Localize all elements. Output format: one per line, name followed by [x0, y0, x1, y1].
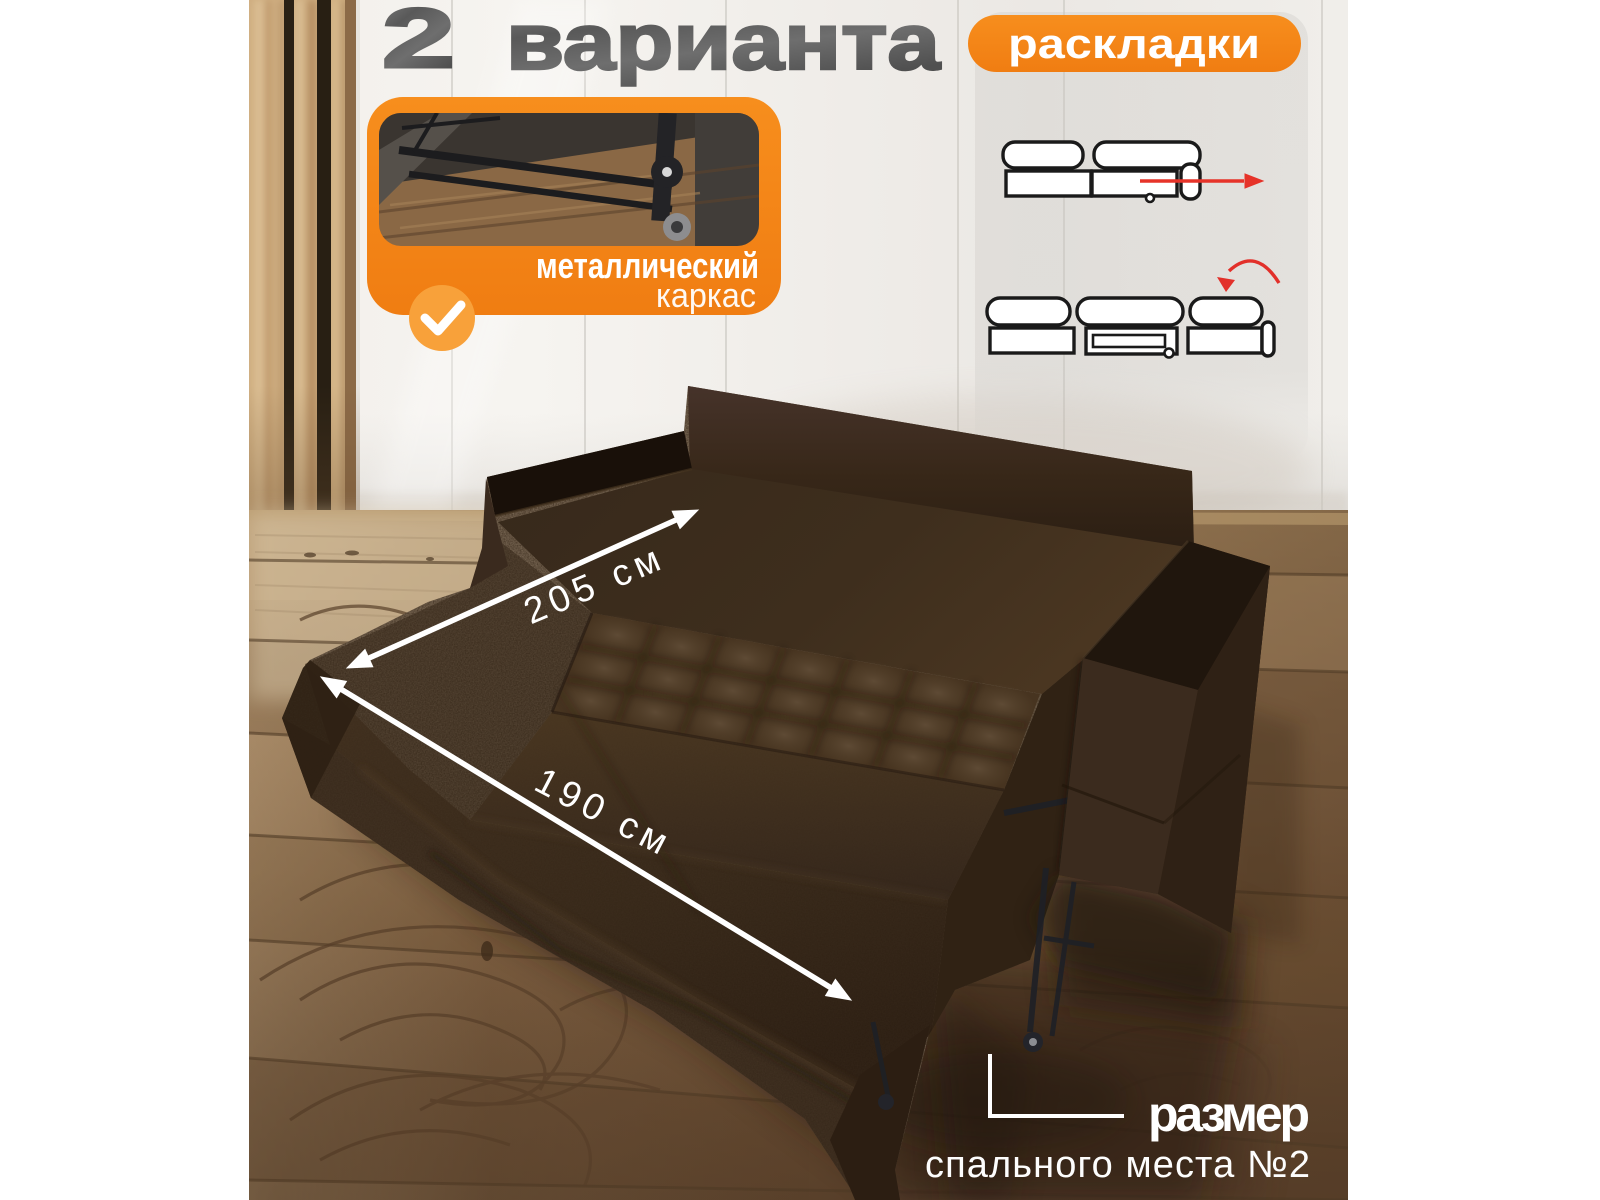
- svg-text:раскладки: раскладки: [1008, 20, 1260, 67]
- svg-text:каркас: каркас: [656, 277, 756, 315]
- svg-text:размер: размер: [1148, 1086, 1310, 1142]
- svg-text:спального места №2: спального места №2: [925, 1144, 1310, 1186]
- svg-text:варианта: варианта: [506, 0, 941, 86]
- svg-text:2: 2: [382, 0, 455, 85]
